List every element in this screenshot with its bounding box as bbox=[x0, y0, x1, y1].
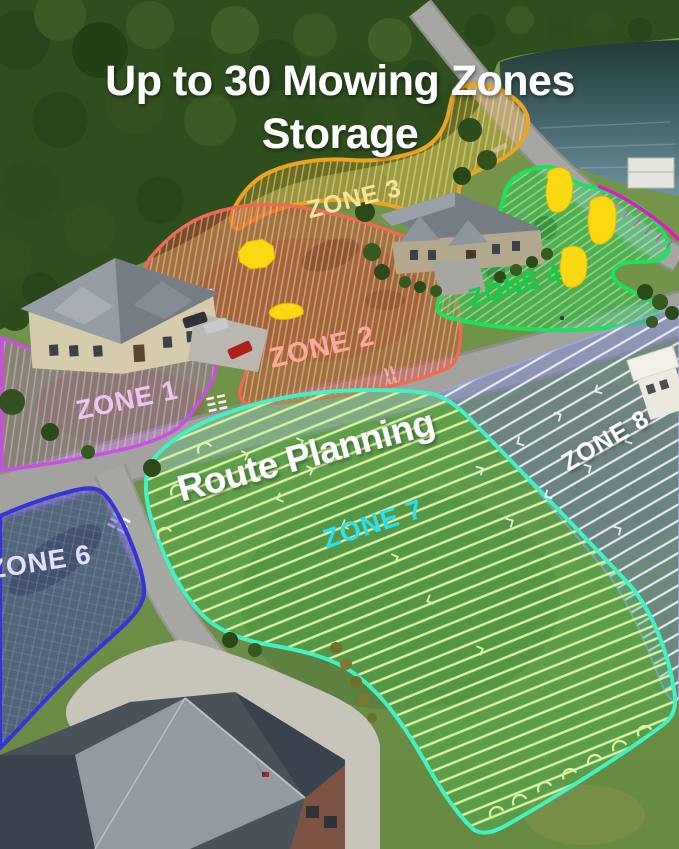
ac-unit bbox=[324, 816, 337, 828]
headline-line2: Storage bbox=[262, 110, 419, 158]
obstacle-marker bbox=[560, 246, 587, 287]
lake-hut bbox=[628, 158, 674, 188]
obstacle-marker bbox=[588, 196, 616, 244]
mower-marketing-image: ZONE 1 ZONE 2 ZONE 3 ZONE 4 ZONE 6 ZONE … bbox=[0, 0, 679, 849]
headline-line1: Up to 30 Mowing Zones bbox=[105, 57, 575, 105]
ac-unit bbox=[306, 806, 319, 818]
aerial-photo-scene: ZONE 1 ZONE 2 ZONE 3 ZONE 4 ZONE 6 ZONE … bbox=[0, 0, 679, 849]
obstacle-marker bbox=[546, 168, 573, 213]
pedestrian-dot bbox=[560, 316, 564, 320]
